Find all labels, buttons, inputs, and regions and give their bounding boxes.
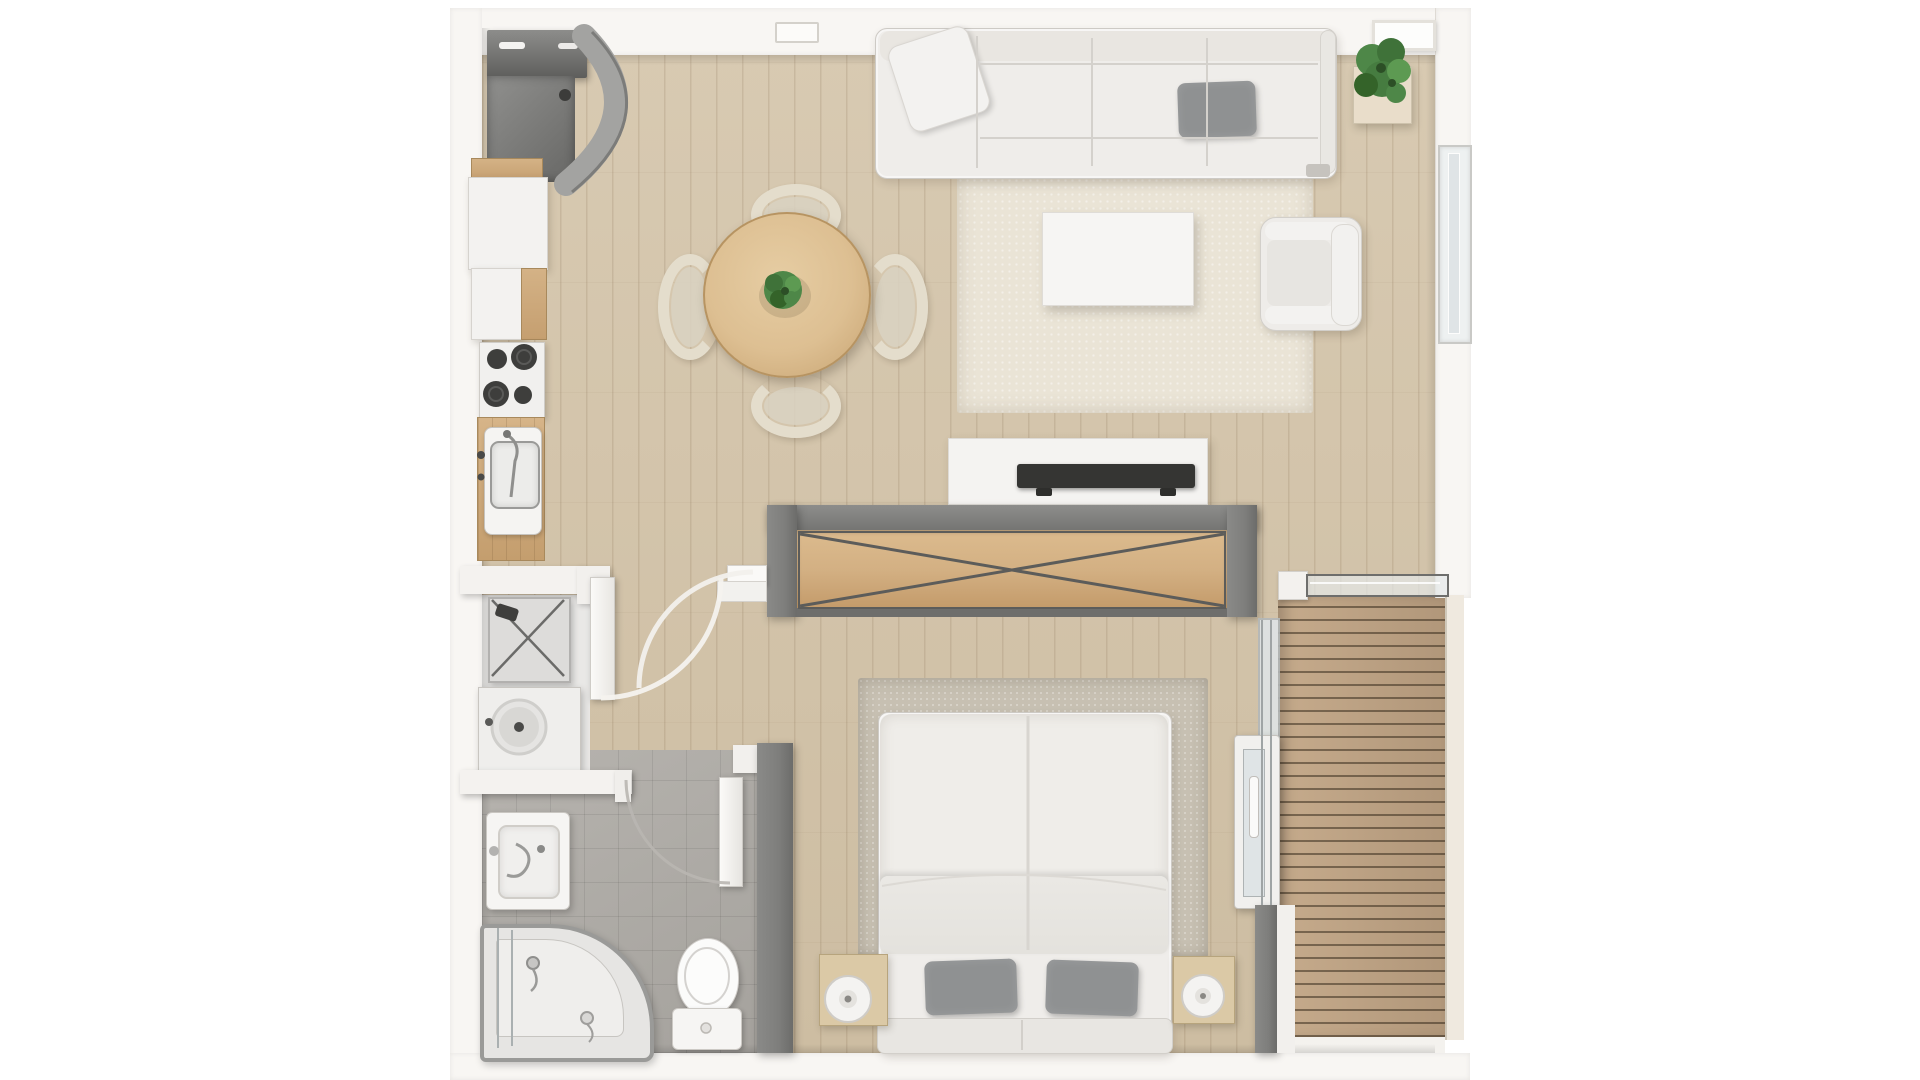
dining-chair-right <box>862 254 928 360</box>
toilet <box>677 938 739 1016</box>
bed-blanket-fold <box>880 876 1168 954</box>
railing-post <box>1278 571 1308 600</box>
bathroom-door-leaf <box>719 777 743 887</box>
bed-headboard <box>877 1018 1173 1054</box>
shower-tray <box>496 939 624 1037</box>
dining-chair-bottom <box>751 374 841 438</box>
floor-plan <box>0 0 1920 1080</box>
balcony-wall-edge <box>1277 905 1295 1053</box>
wardrobe-frame-right <box>1227 505 1257 617</box>
tv-foot <box>1160 488 1176 496</box>
partition-bedroom-balcony <box>1255 905 1277 1053</box>
armchair-back <box>1331 224 1359 326</box>
nightstand-left <box>819 954 888 1026</box>
glass-side-pane <box>1258 618 1280 742</box>
kitchen-counter-mid <box>521 268 547 340</box>
entry-door-slit <box>558 43 578 49</box>
dining-table <box>703 212 871 378</box>
bed-pillow-left <box>924 958 1018 1015</box>
cooktop <box>479 342 545 419</box>
washbasin-bowl <box>498 825 560 899</box>
entry-door-slit <box>499 42 525 49</box>
bathroom-shelf-jamb <box>615 770 631 802</box>
storage-box <box>488 597 571 683</box>
closet-door-leaf <box>590 577 615 700</box>
balcony-deck <box>1278 595 1445 1040</box>
tv-foot <box>1036 488 1052 496</box>
entry-inner-door-leaf <box>717 581 767 602</box>
window <box>1438 145 1472 344</box>
wardrobe-frame-top <box>767 505 1257 530</box>
kitchen-sink <box>484 427 542 535</box>
wardrobe-frame-bottom <box>797 608 1227 617</box>
bed-pillow-right <box>1045 959 1139 1016</box>
sliding-glass-door <box>1234 735 1280 909</box>
chair-seat <box>764 387 828 425</box>
chair-seat <box>875 267 915 347</box>
ceiling-light <box>775 22 819 43</box>
sofa-foot <box>1306 164 1330 177</box>
armchair-seat <box>1267 240 1331 306</box>
entry-door <box>487 30 587 78</box>
wardrobe-doors <box>797 530 1227 610</box>
coffee-table <box>1042 212 1194 306</box>
armchair <box>1260 217 1362 331</box>
bathroom-shelf <box>460 770 632 794</box>
sofa-gray-pillow <box>1177 81 1257 139</box>
washing-machine <box>478 687 581 773</box>
glass-door-handle <box>1249 776 1259 838</box>
kitchen-tall-cabinet <box>468 177 548 270</box>
balcony-deck-end <box>1278 1037 1445 1053</box>
wall-right-balcony-rail <box>1445 595 1464 1040</box>
wardrobe-frame-left <box>767 505 797 617</box>
sofa-arm-right <box>1320 30 1336 174</box>
kitchen-base-cabinet <box>471 268 523 340</box>
partition-bathroom-bedroom <box>757 743 793 1053</box>
corner-planter <box>1353 66 1412 124</box>
bathroom-door-jamb <box>733 745 757 773</box>
window-glass <box>1448 153 1460 334</box>
nightstand-right <box>1173 956 1235 1024</box>
closet-shelf <box>460 566 583 594</box>
toilet-base <box>672 1008 742 1050</box>
plant-shelf-frame <box>1372 20 1436 51</box>
washbasin <box>486 812 570 910</box>
glass-railing <box>1306 574 1449 597</box>
tv <box>1017 464 1195 488</box>
sink-basin <box>490 441 540 509</box>
